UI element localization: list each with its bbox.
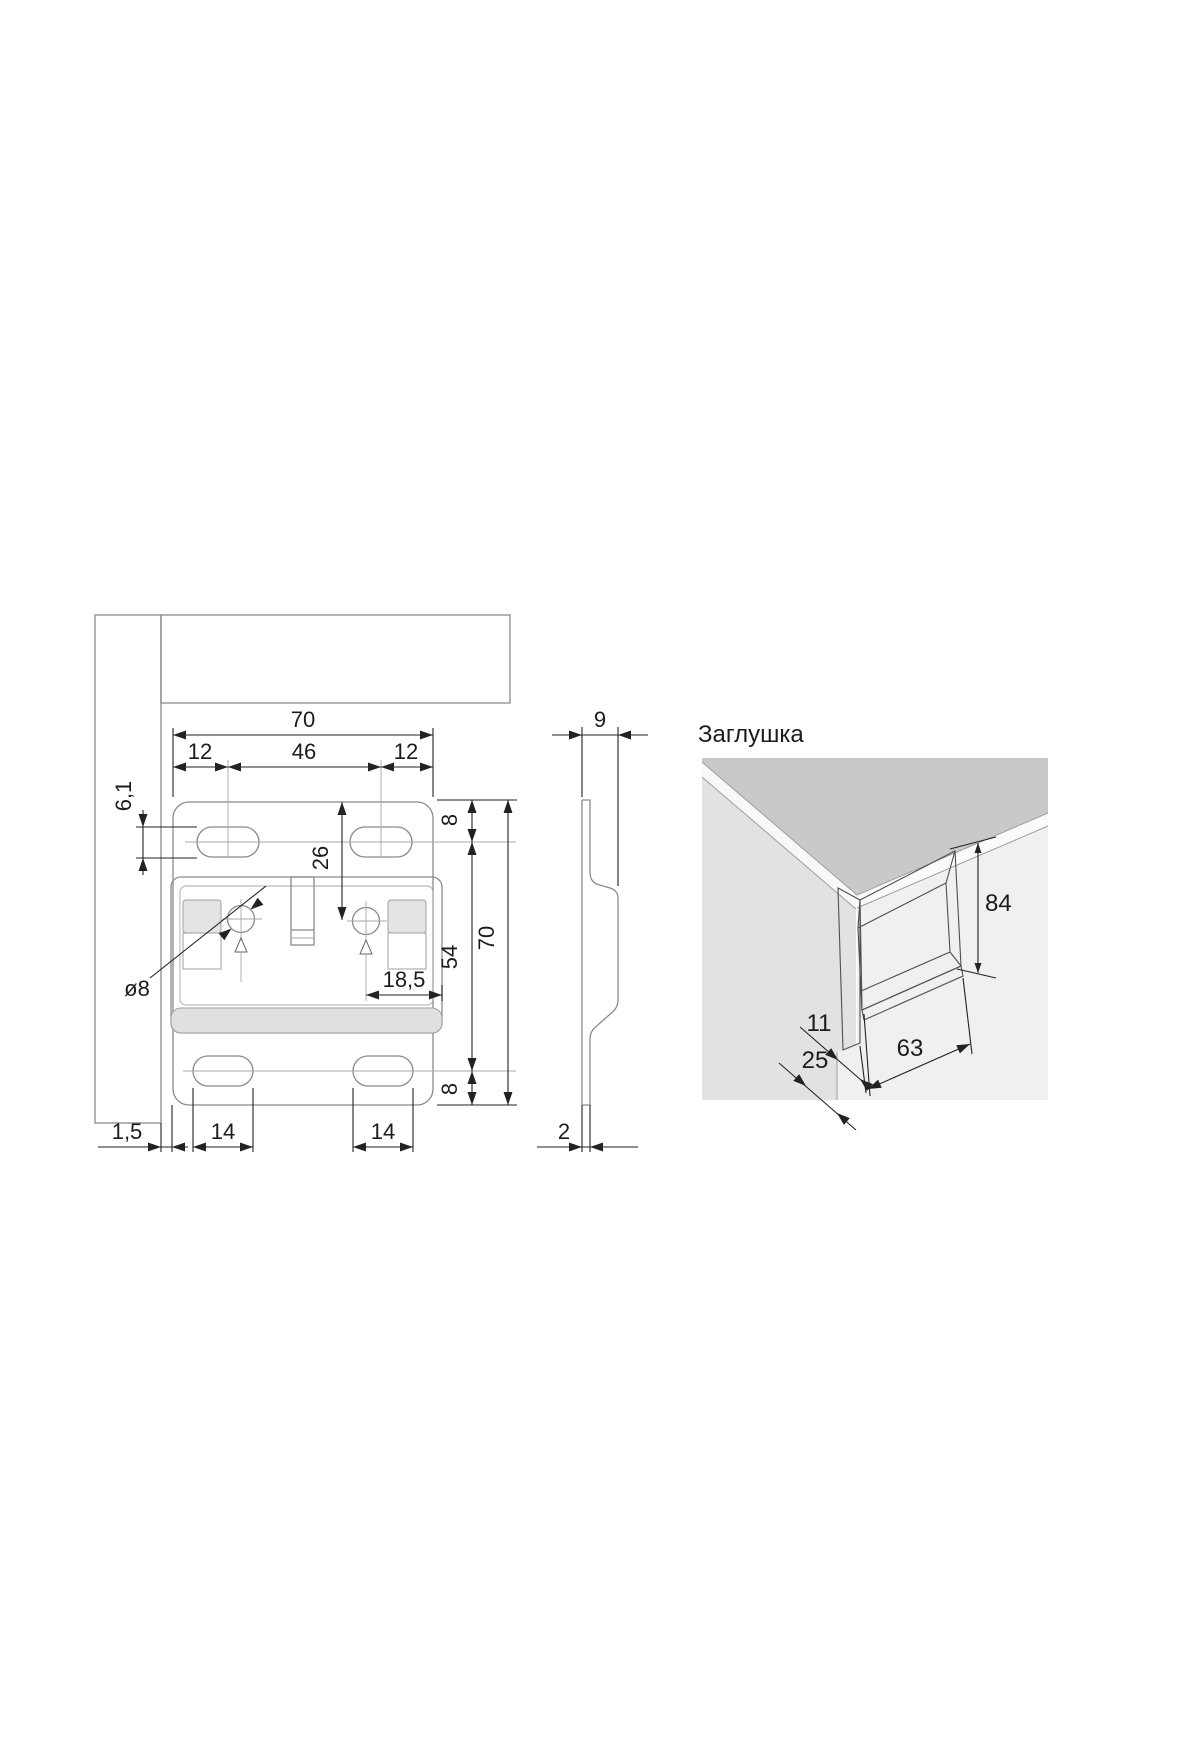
right-recess: [388, 900, 426, 933]
arrow: [468, 842, 477, 855]
arrow: [468, 1092, 477, 1105]
dim-cap-width: 63: [897, 1035, 924, 1062]
arrow: [338, 802, 347, 815]
arrow: [173, 763, 186, 772]
dim-cap-side: 25: [802, 1047, 829, 1074]
arrow: [504, 800, 513, 813]
arrow: [148, 1143, 161, 1152]
latch-tongue: [291, 877, 314, 945]
dim-slot-span: 54: [437, 945, 462, 969]
arrow: [468, 1058, 477, 1071]
side-extension-lines: [582, 727, 618, 1152]
dim-slot-len-left: 14: [211, 1119, 235, 1144]
dim-edge-to-slot-bottom: 8: [437, 1083, 462, 1095]
arrow: [193, 1143, 206, 1152]
right-rect-hole: [388, 933, 426, 969]
dim-height-total: 70: [474, 926, 499, 950]
arrow: [215, 763, 228, 772]
side-profile: [582, 800, 618, 1105]
arrow: [251, 898, 264, 910]
dim-slot-len-right: 14: [371, 1119, 395, 1144]
arrow: [173, 731, 186, 740]
left-recess: [183, 900, 221, 933]
side-view: 9 2: [537, 707, 648, 1152]
wall-section-hatch: [95, 615, 161, 1123]
dim-edge-to-slot-top: 8: [437, 814, 462, 826]
arrow: [240, 1143, 253, 1152]
arrow: [228, 763, 241, 772]
latch-body-bottom-rail: [171, 1008, 442, 1033]
arrow: [139, 814, 148, 827]
dim-cap-height: 84: [985, 890, 1012, 917]
front-view: 70 12 46 12 6,1 26 8 54 8: [95, 615, 517, 1152]
panel-section-hatch: [161, 615, 510, 703]
arrow: [590, 1143, 603, 1152]
dim-width-total: 70: [291, 707, 315, 732]
dim-slot-height: 6,1: [111, 781, 136, 812]
arrow: [468, 1071, 477, 1084]
dim-cap-edge: 11: [807, 1010, 832, 1037]
arrow: [569, 1143, 582, 1152]
dim-offset-right: 12: [394, 739, 418, 764]
arrow: [172, 1143, 185, 1152]
arrow: [420, 731, 433, 740]
cap-view: Заглушка: [698, 721, 1048, 1130]
arrow: [353, 1143, 366, 1152]
dim-depth: 9: [594, 707, 606, 732]
dim-offset-left: 12: [188, 739, 212, 764]
left-rect-hole: [183, 933, 221, 969]
arrow: [368, 763, 381, 772]
technical-drawing-page: 70 12 46 12 6,1 26 8 54 8: [0, 0, 1200, 1760]
arrow: [420, 763, 433, 772]
insert-arrow-right: [360, 940, 372, 954]
arrow: [468, 800, 477, 813]
arrow: [400, 1143, 413, 1152]
arrow: [504, 1092, 513, 1105]
insert-arrow-left: [235, 938, 247, 952]
dim-hole-to-edge: 18,5: [383, 967, 426, 992]
dim-top-to-hole: 26: [308, 846, 333, 870]
arrow: [381, 763, 394, 772]
arrow: [139, 858, 148, 871]
arrow: [618, 731, 631, 740]
arrow: [338, 907, 347, 920]
arrow: [366, 991, 379, 1000]
drawing-svg: 70 12 46 12 6,1 26 8 54 8: [0, 0, 1200, 1760]
dim-span-center: 46: [292, 739, 316, 764]
arrow: [569, 731, 582, 740]
dim-hole-dia: ø8: [124, 976, 150, 1001]
dim-thickness: 2: [558, 1119, 570, 1144]
dim-wall-gap: 1,5: [112, 1119, 143, 1144]
cap-title: Заглушка: [698, 721, 804, 748]
arrow: [468, 829, 477, 842]
arrow: [429, 991, 442, 1000]
